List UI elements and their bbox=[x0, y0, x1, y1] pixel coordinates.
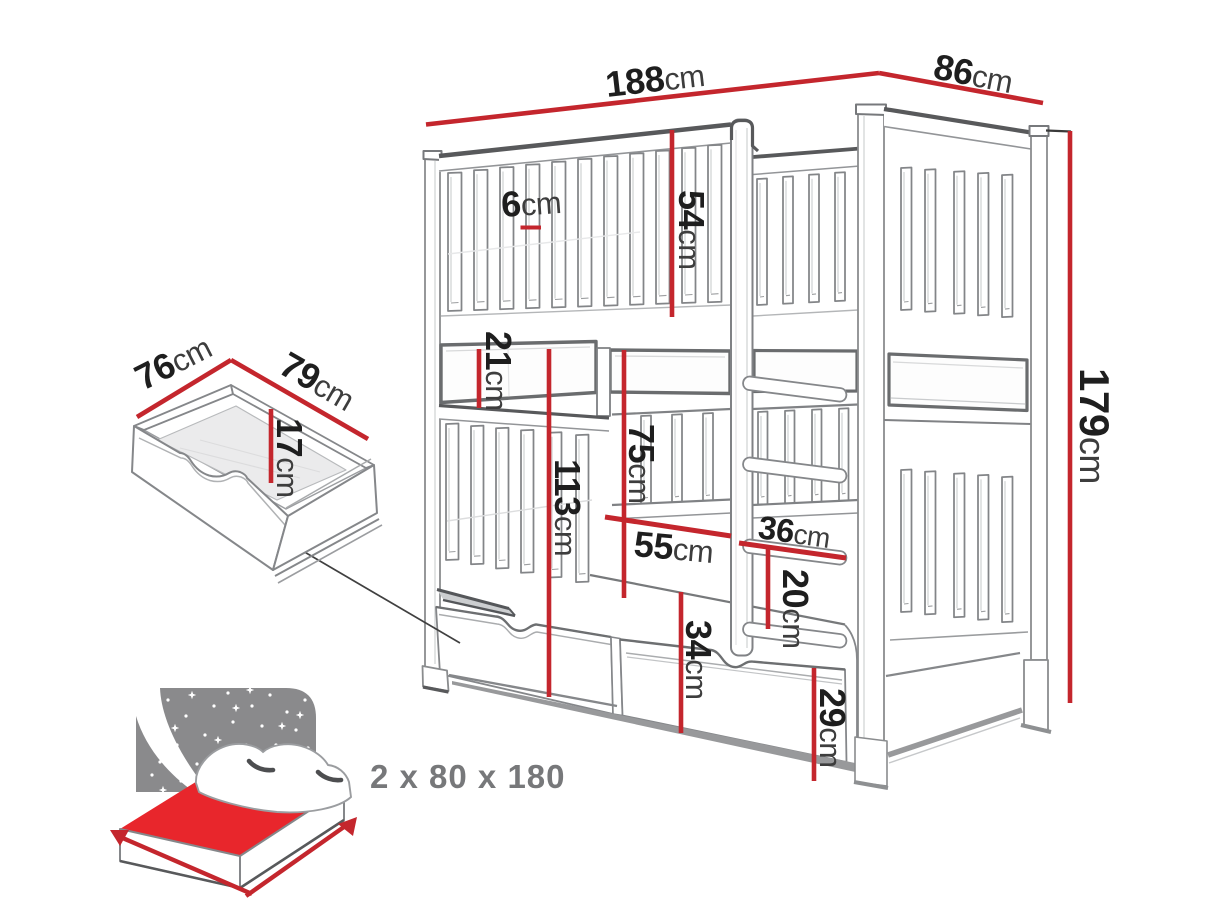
svg-text:2 x 80 x 180: 2 x 80 x 180 bbox=[370, 758, 566, 795]
svg-text:75cm: 75cm bbox=[621, 424, 662, 504]
svg-text:113cm: 113cm bbox=[547, 459, 588, 556]
svg-text:34cm: 34cm bbox=[678, 620, 719, 700]
svg-text:6cm: 6cm bbox=[500, 180, 563, 225]
svg-text:21cm: 21cm bbox=[478, 331, 519, 411]
svg-text:20cm: 20cm bbox=[775, 569, 816, 649]
svg-text:17cm: 17cm bbox=[269, 418, 310, 498]
svg-text:29cm: 29cm bbox=[812, 688, 853, 768]
svg-text:54cm: 54cm bbox=[671, 190, 712, 270]
svg-text:179cm: 179cm bbox=[1071, 368, 1118, 484]
